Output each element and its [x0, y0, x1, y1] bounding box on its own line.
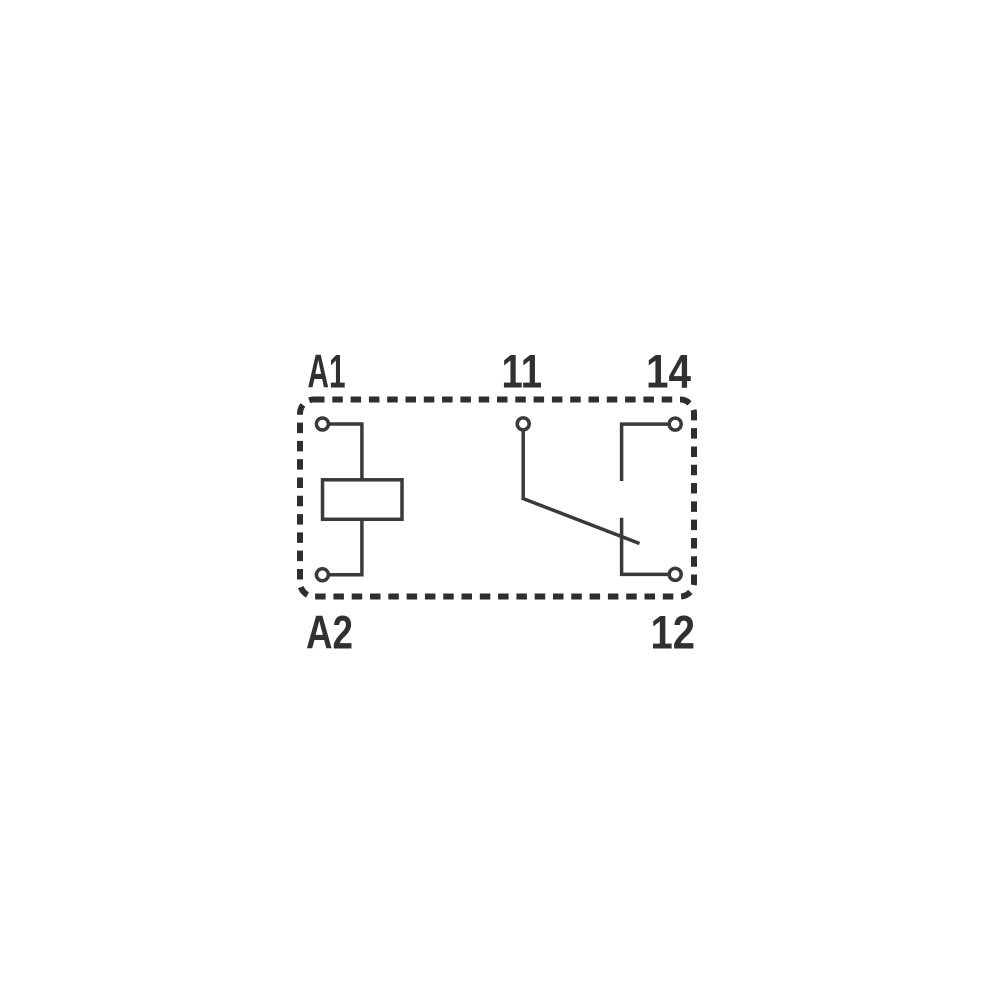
svg-text:14: 14 [646, 345, 691, 398]
svg-text:A1: A1 [308, 345, 346, 398]
svg-text:11: 11 [502, 345, 543, 398]
svg-text:A2: A2 [306, 606, 353, 659]
svg-text:12: 12 [651, 606, 696, 659]
